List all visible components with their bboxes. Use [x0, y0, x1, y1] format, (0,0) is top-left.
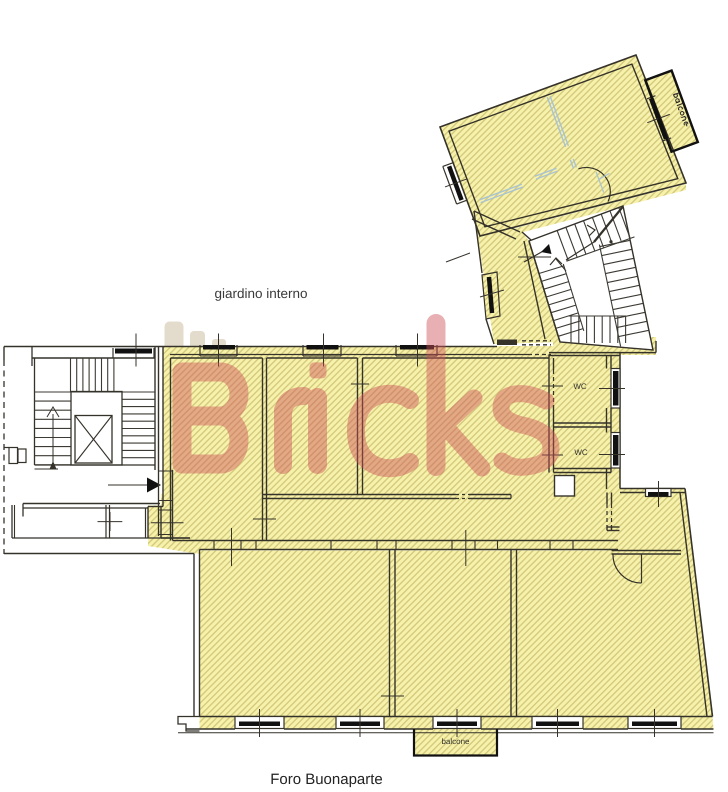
svg-text:balcone: balcone	[441, 737, 470, 746]
svg-text:Foro Buonaparte: Foro Buonaparte	[270, 771, 383, 788]
svg-text:WC: WC	[574, 448, 588, 457]
svg-text:giardino interno: giardino interno	[214, 286, 307, 301]
svg-text:WC: WC	[573, 382, 587, 391]
